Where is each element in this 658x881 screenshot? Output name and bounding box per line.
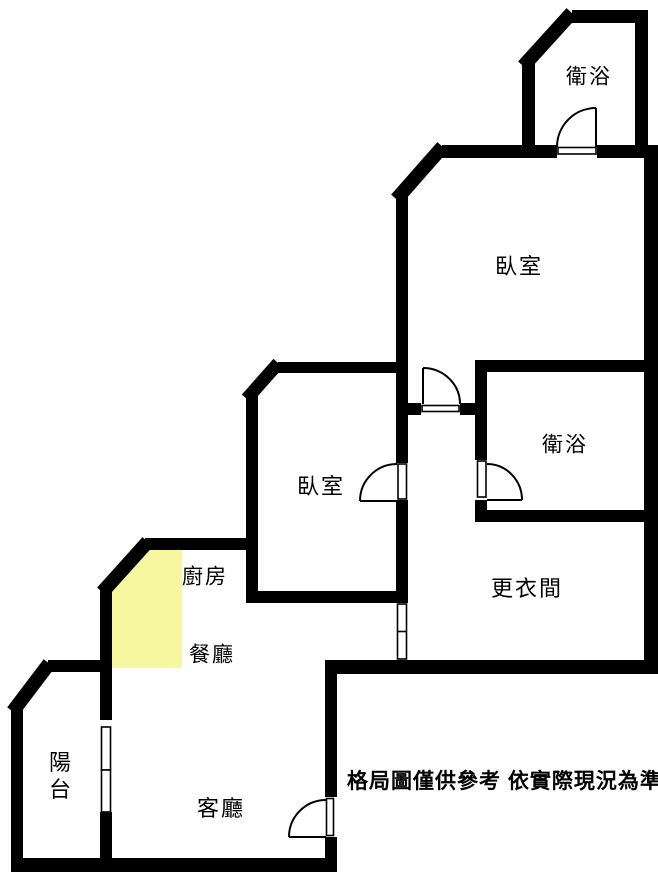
room-label-closet: 更衣間 [491, 578, 563, 600]
cbed-door-jamb [398, 464, 407, 499]
bathroom-middle-door [487, 464, 522, 500]
wall-openings [100, 145, 597, 837]
balcony-window-pane-bottom [102, 770, 111, 812]
balcony-window-pane-top [102, 727, 111, 770]
room-label-bedroom-center: 臥室 [297, 476, 345, 498]
room-label-bathroom-top: 衛浴 [566, 67, 612, 88]
room-label-balcony: 陽台 [48, 749, 72, 803]
room-label-kitchen: 廚房 [182, 567, 228, 588]
room-label-bedroom-right: 臥室 [495, 256, 543, 278]
floor-plan-page: 衛浴 臥室 衛浴 更衣間 臥室 廚房 餐廳 客廳 陽台 格局圖僅供參考 依實際現… [0, 0, 658, 881]
room-label-dining: 餐廳 [189, 645, 235, 666]
bedroom-center-door [360, 464, 397, 501]
midbath-door-jamb [478, 461, 487, 497]
bathroom-top-door [557, 108, 596, 147]
entry-door [289, 800, 326, 837]
room-label-living: 客廳 [197, 798, 245, 820]
disclaimer-text: 格局圖僅供參考 依實際現況為準 [347, 765, 658, 795]
bedroom-right-door [423, 368, 460, 404]
rbed-threshold [422, 406, 459, 412]
entry-door-jamb [327, 799, 334, 836]
bath-top-threshold [558, 148, 596, 155]
room-label-bathroom-middle: 衛浴 [542, 435, 588, 456]
